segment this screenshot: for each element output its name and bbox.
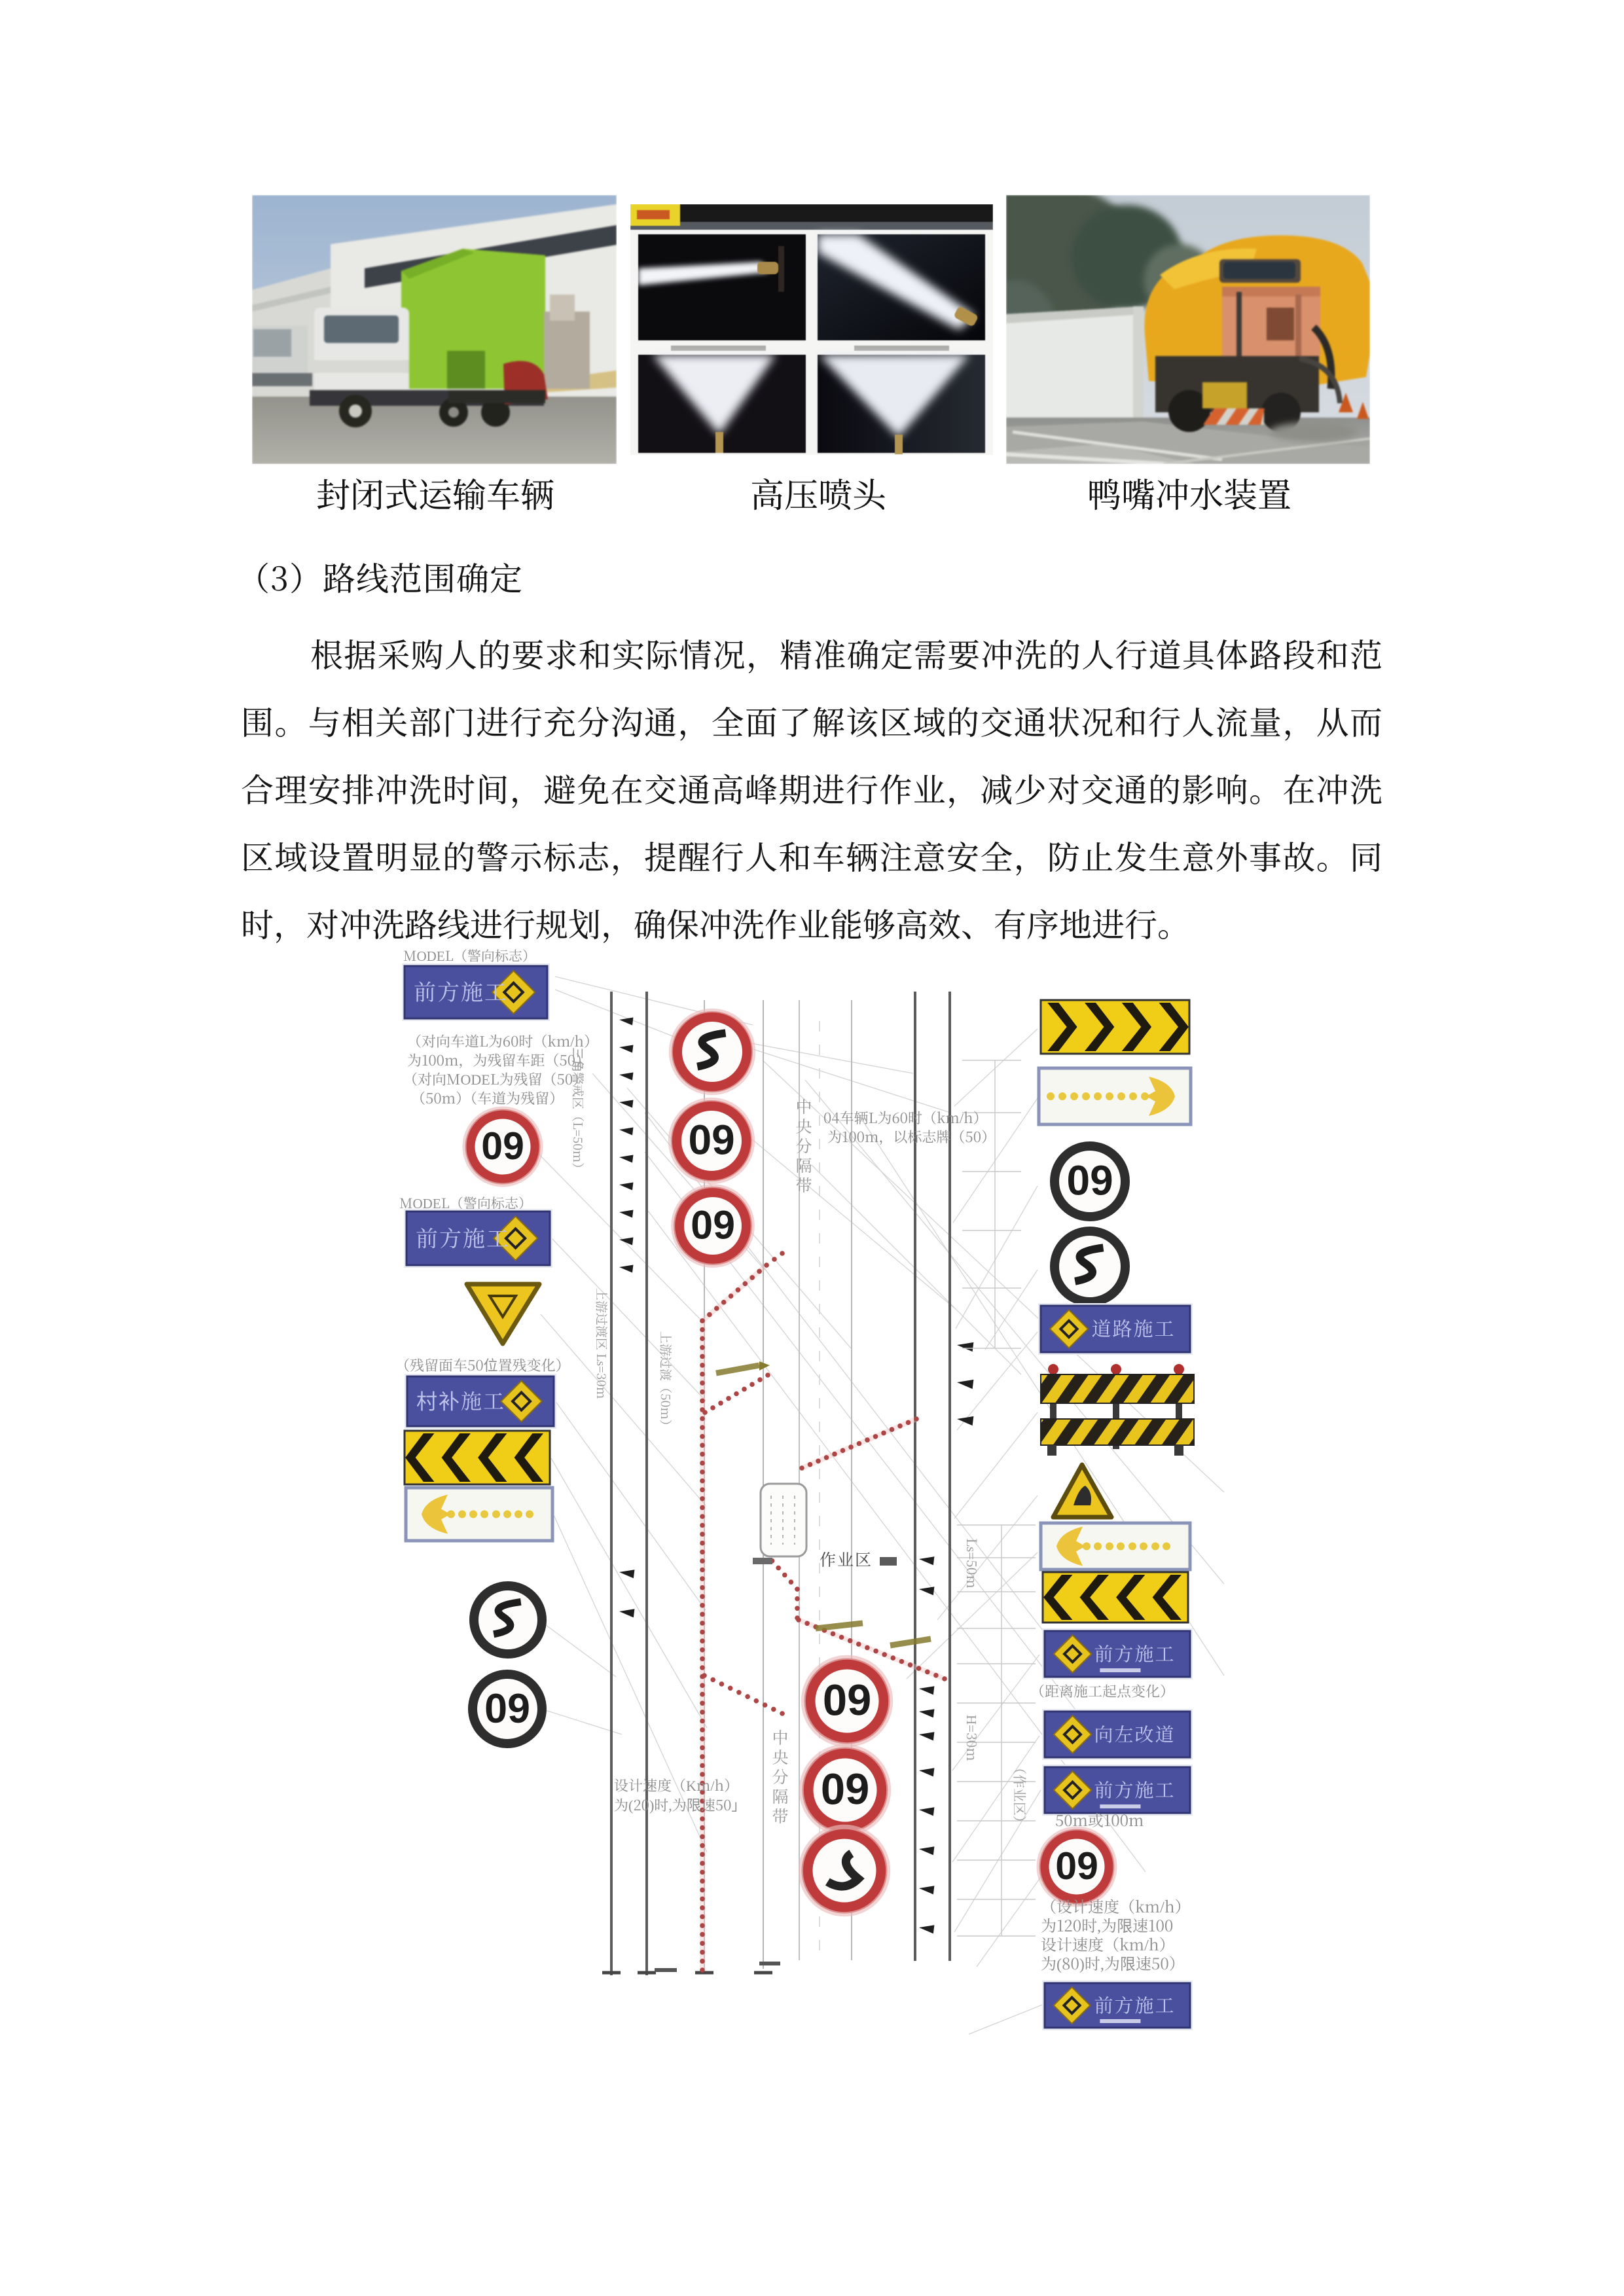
svg-text:04车辆L为60时（km/h）: 04车辆L为60时（km/h） — [823, 1107, 988, 1128]
svg-text:MODEL（警向标志）: MODEL（警向标志） — [403, 946, 536, 965]
svg-text:前方施工: 前方施工 — [1094, 1991, 1175, 2018]
svg-text:60: 60 — [821, 1764, 870, 1813]
svg-text:（残留面车50位置残变化）: （残留面车50位置残变化） — [395, 1355, 570, 1375]
svg-text:（作业区）: （作业区） — [1010, 1761, 1030, 1829]
svg-text:（对向MODEL为残留（50）: （对向MODEL为残留（50） — [403, 1069, 587, 1089]
svg-text:前方施工: 前方施工 — [414, 975, 508, 1007]
svg-text:中央分隔带: 中央分隔带 — [772, 1725, 788, 1827]
svg-text:中央分隔带: 中央分隔带 — [795, 1094, 812, 1196]
svg-text:为100m，以标志牌（50）: 为100m，以标志牌（50） — [827, 1126, 996, 1147]
svg-text:道路施工: 道路施工 — [1092, 1313, 1176, 1342]
svg-text:设计速度（Km/h）: 设计速度（Km/h） — [614, 1775, 738, 1795]
svg-text:前方施工: 前方施工 — [416, 1221, 510, 1253]
svg-text:60: 60 — [688, 1116, 734, 1163]
svg-text:村补施工: 村补施工 — [416, 1385, 505, 1415]
svg-text:前方施工: 前方施工 — [1094, 1776, 1175, 1803]
svg-text:60: 60 — [481, 1124, 524, 1167]
svg-text:向左改道: 向左改道 — [1094, 1721, 1175, 1748]
svg-text:50m或100m: 50m或100m — [1055, 1808, 1144, 1831]
svg-text:60: 60 — [1066, 1157, 1113, 1204]
svg-text:三角警戒区（L=50m）: 三角警戒区（L=50m） — [569, 1047, 587, 1175]
svg-text:为100m，为残留车距（50）: 为100m，为残留车距（50） — [407, 1050, 590, 1070]
svg-text:60: 60 — [691, 1202, 735, 1247]
svg-text:（距离施工起点变化）: （距离施工起点变化） — [1030, 1681, 1174, 1701]
svg-text:为(20)时,为限速50」: 为(20)时,为限速50」 — [614, 1795, 746, 1815]
svg-text:60: 60 — [484, 1685, 530, 1731]
svg-text:前方施工: 前方施工 — [1094, 1640, 1175, 1667]
svg-text:（50m）（车道为残留）: （50m）（车道为残留） — [411, 1088, 564, 1108]
svg-text:作业区: 作业区 — [820, 1547, 873, 1571]
svg-text:上游过渡区 Ls=30m: 上游过渡区 Ls=30m — [593, 1288, 611, 1399]
svg-text:上游过渡（50m）: 上游过渡（50m） — [657, 1331, 675, 1432]
svg-text:H=30m: H=30m — [962, 1715, 982, 1761]
svg-text:Ls=50m: Ls=50m — [962, 1538, 982, 1588]
svg-text:为(80)时,为限速50）: 为(80)时,为限速50） — [1041, 1951, 1185, 1974]
svg-text:60: 60 — [823, 1675, 872, 1724]
svg-text:60: 60 — [1055, 1844, 1098, 1887]
